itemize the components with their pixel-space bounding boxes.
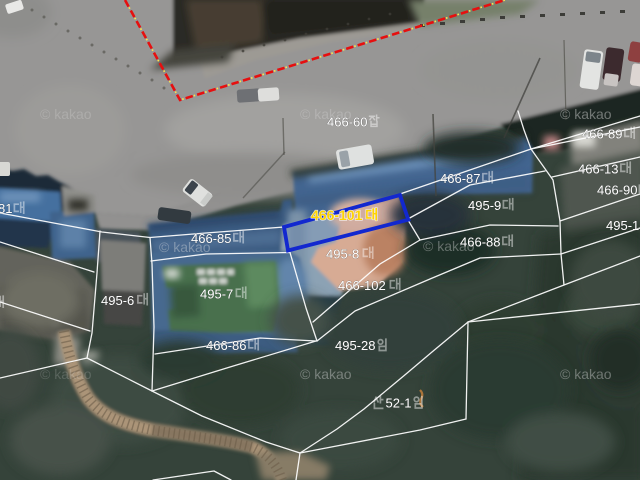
svg-text:© kakao: © kakao [560,366,612,382]
svg-text:© kakao: © kakao [560,106,612,122]
svg-text:495-28: 495-28 [335,338,375,353]
svg-text:466-87: 466-87 [440,171,480,186]
svg-text:466-101: 466-101 [311,207,363,223]
svg-text:81: 81 [0,201,12,216]
svg-text:495-8: 495-8 [326,247,359,262]
svg-text:466-13: 466-13 [578,162,618,177]
svg-text:495-1: 495-1 [606,218,639,233]
svg-text:466-60: 466-60 [327,115,367,130]
svg-text:© kakao: © kakao [40,366,92,382]
svg-text:495-9: 495-9 [468,198,501,213]
svg-text:466-89: 466-89 [582,127,622,142]
svg-text:© kakao: © kakao [300,366,352,382]
svg-text:52-1: 52-1 [386,396,412,411]
svg-text:495-6: 495-6 [101,293,134,308]
svg-text:466-102: 466-102 [338,278,386,293]
svg-text:466-86: 466-86 [206,338,246,353]
svg-text:466-88: 466-88 [460,235,500,250]
svg-text:495-7: 495-7 [200,287,233,302]
svg-text:466-90: 466-90 [597,183,637,198]
svg-text:466-85: 466-85 [191,231,231,246]
svg-text:© kakao: © kakao [40,106,92,122]
